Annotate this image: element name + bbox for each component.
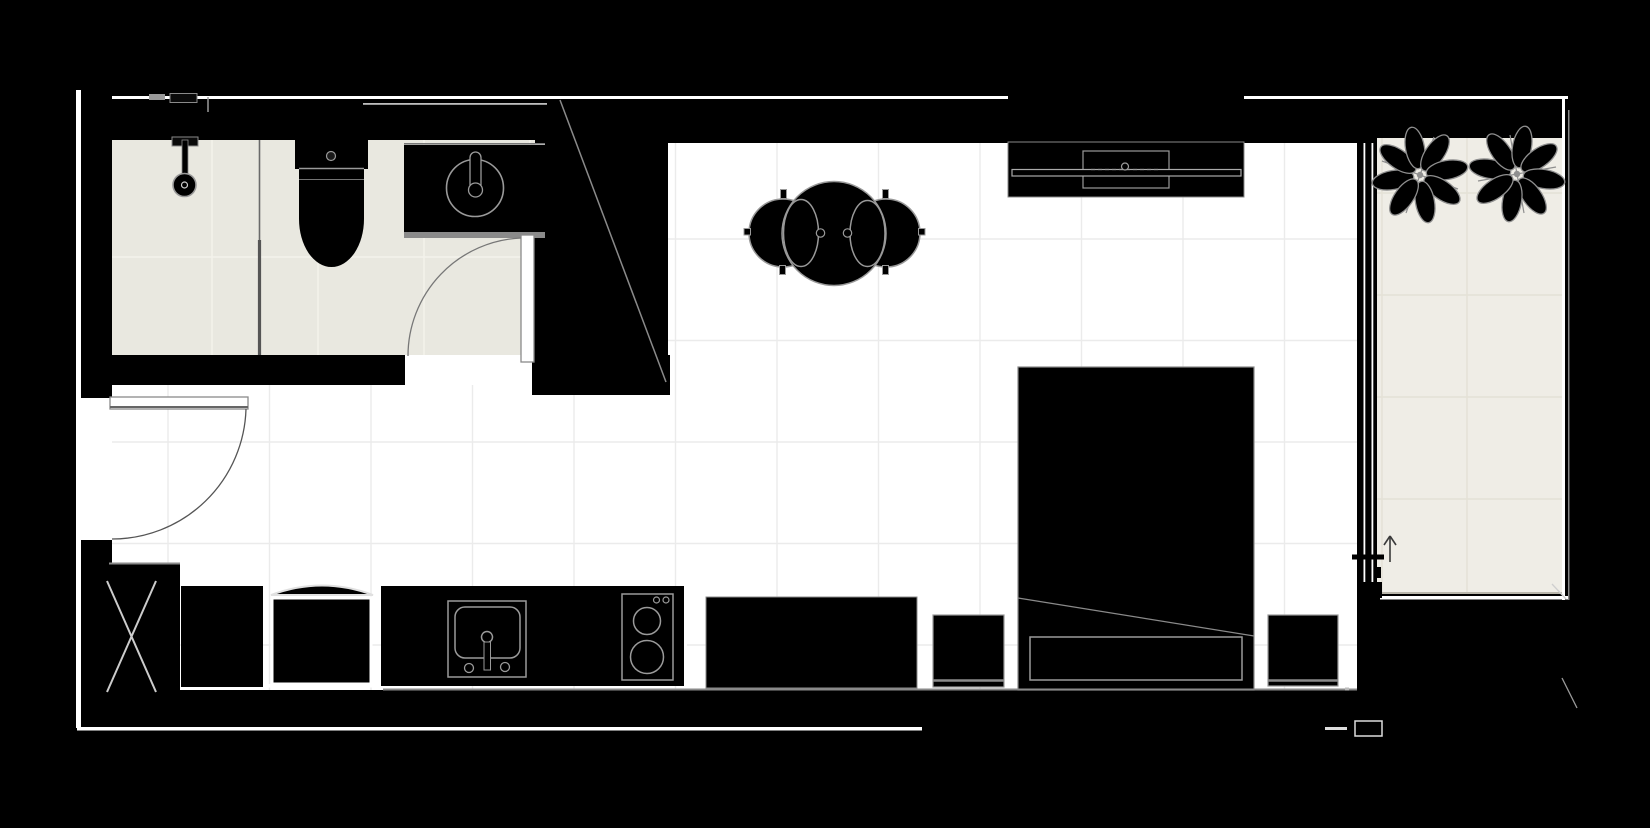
entry-door-opening xyxy=(76,398,112,540)
chair-tab xyxy=(744,229,751,236)
pillow xyxy=(1030,637,1242,680)
bathroom-door-leaf xyxy=(521,235,534,362)
bathroom-door-frame-wall xyxy=(534,232,546,355)
kitchen-sink-faucet-stem xyxy=(484,642,491,670)
left-wall-upper xyxy=(80,97,112,398)
balcony-mullion-wall xyxy=(1357,143,1363,598)
balcony-bottom-line xyxy=(1380,596,1568,600)
top-wall xyxy=(80,97,1357,143)
wall-tick xyxy=(149,94,165,100)
bathroom-south-wall xyxy=(82,355,405,385)
window-line xyxy=(363,103,547,105)
balcony-railing-outer xyxy=(1568,110,1570,600)
bathroom-door-opening xyxy=(405,355,532,385)
balcony-railing-right xyxy=(1562,99,1565,600)
tv-screen xyxy=(1012,170,1241,177)
chair-tab xyxy=(780,266,786,275)
desk-chair-seat xyxy=(272,598,371,684)
outer-wall-line-bottom xyxy=(77,727,922,731)
chair-tab xyxy=(883,266,889,275)
balcony-floor-edge xyxy=(1377,592,1562,594)
dining-table xyxy=(782,182,886,286)
nightstand-right xyxy=(1268,615,1338,686)
outer-wall-line-top-right xyxy=(1244,96,1357,99)
balcony-top-wall xyxy=(1363,97,1562,138)
kitchen-sink-faucet xyxy=(482,632,493,643)
kitchen-counter-end-line xyxy=(684,586,687,686)
sliding-door-wall-block xyxy=(1357,582,1382,598)
vanity-mirror-line xyxy=(404,143,545,145)
chair-tab xyxy=(781,190,787,199)
plant-right-center xyxy=(1514,171,1520,177)
tv-knob xyxy=(1122,163,1129,170)
outside-diagonal-line xyxy=(1562,678,1577,708)
shower-bracket-top xyxy=(170,94,197,103)
outer-wall-line-balcony-top xyxy=(1357,96,1568,99)
table-mark xyxy=(816,229,824,237)
kitchen-sink-knob xyxy=(465,664,474,673)
kitchen-sink-knob xyxy=(501,663,510,672)
desk-chair-floor-line xyxy=(264,684,378,688)
outer-wall-bottom-mark xyxy=(1325,727,1347,730)
floor-bottom-edge xyxy=(383,689,1357,691)
vanity-faucet-base xyxy=(469,183,483,197)
plant-left-center xyxy=(1417,172,1423,178)
chair-tab xyxy=(919,229,926,236)
sliding-door-handle xyxy=(1352,555,1384,560)
floor-plan-page: Studio apartment floor plan xyxy=(0,0,1650,828)
sliding-door-line xyxy=(1364,143,1366,590)
kitchen-cabinet-left xyxy=(181,586,263,687)
wardrobe-column xyxy=(545,97,668,385)
table-mark xyxy=(843,229,851,237)
sliding-door-latch xyxy=(1374,567,1381,578)
floor-plan-svg xyxy=(0,0,1650,828)
outer-wall-line-top xyxy=(112,96,1008,99)
outer-wall-bottom-tick xyxy=(1345,688,1349,691)
sliding-door-line xyxy=(1372,143,1374,590)
nightstand-left xyxy=(933,615,1004,687)
shower-head xyxy=(173,174,196,197)
chair-tab xyxy=(883,190,889,199)
toilet-flush-button xyxy=(327,152,336,161)
outer-wall-corner-outline xyxy=(1355,721,1382,736)
dresser xyxy=(706,597,917,688)
